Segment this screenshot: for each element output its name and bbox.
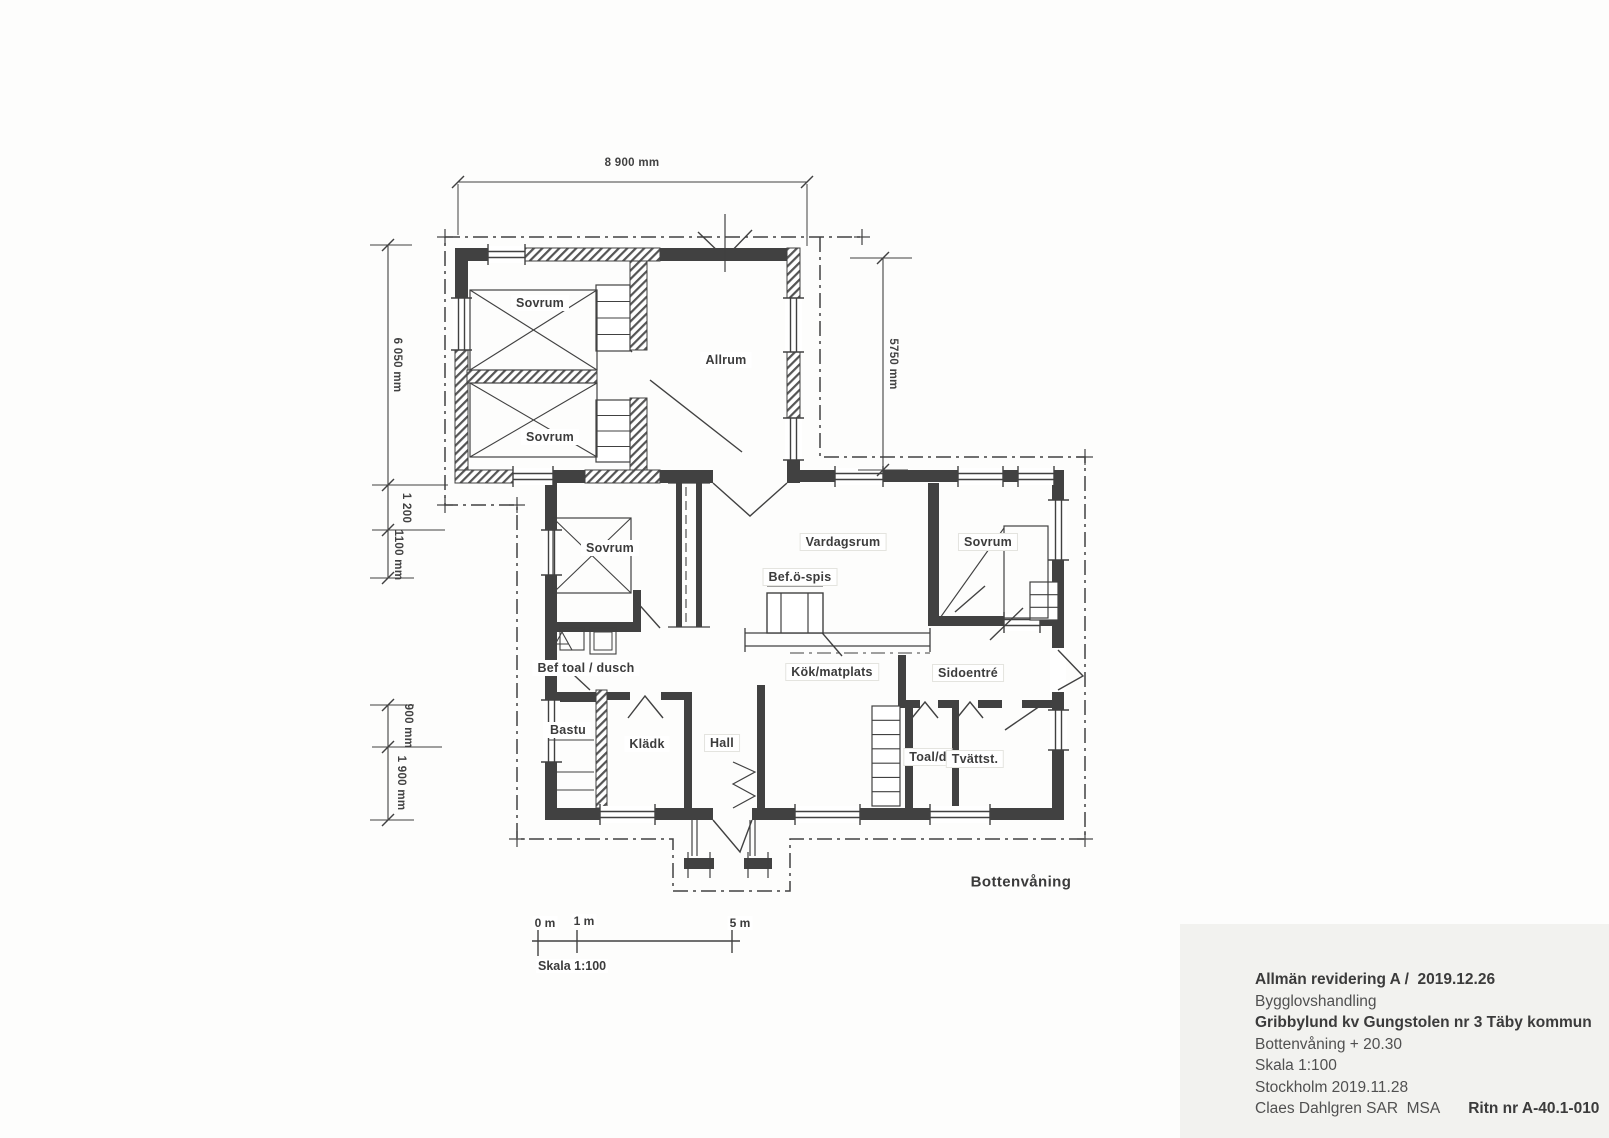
floor-plan-title: Bottenvåning [971, 874, 1072, 891]
room-label-kladk: Klädk [624, 736, 669, 752]
room-label-sidoentre: Sidoentré [932, 664, 1004, 682]
document-type-line: Bygglovshandling [1255, 991, 1599, 1013]
room-label-vardagsrum: Vardagsrum [800, 533, 887, 551]
drawing-number: Ritn nr A-40.1-010 [1468, 1098, 1599, 1120]
scale-line: Skala 1:100 [1255, 1055, 1599, 1077]
floor-line: Bottenvåning + 20.30 [1255, 1034, 1599, 1056]
scale-caption: Skala 1:100 [536, 959, 608, 973]
room-label-bef-toal-dusch: Bef toal / dusch [532, 660, 639, 676]
room-label-bef-o-spis: Bef.ö-spis [763, 568, 838, 586]
dim-left-height: 6 050 mm [391, 338, 403, 393]
dim-left-gap-upper: 1 200 [400, 493, 412, 523]
dim-right-height: 5750 mm [887, 338, 899, 389]
architect-name: Claes Dahlgren SAR MSA [1255, 1098, 1440, 1120]
scale-tick-0-label: 0 m [533, 916, 558, 930]
architect-row: Claes Dahlgren SAR MSA Ritn nr A-40.1-01… [1255, 1098, 1599, 1120]
place-date-line: Stockholm 2019.11.28 [1255, 1077, 1599, 1099]
project-line: Gribbylund kv Gungstolen nr 3 Täby kommu… [1255, 1012, 1599, 1034]
room-label-sovrum-sw: Sovrum [521, 429, 579, 445]
room-label-sovrum-mid: Sovrum [581, 540, 639, 556]
room-label-bastu: Bastu [545, 722, 591, 738]
dim-top-width: 8 900 mm [605, 157, 660, 169]
room-label-sovrum-e: Sovrum [958, 533, 1018, 551]
title-block-lines: Allmän revidering A / 2019.12.26 Bygglov… [1255, 969, 1599, 1120]
title-block: Allmän revidering A / 2019.12.26 Bygglov… [1180, 924, 1609, 1138]
room-label-allrum: Allrum [700, 352, 751, 368]
room-label-tvattst: Tvättst. [946, 750, 1004, 768]
scale-tick-1-label: 1 m [572, 914, 597, 928]
room-label-sovrum-nw: Sovrum [511, 295, 569, 311]
room-label-kok-matplats: Kök/matplats [785, 663, 879, 681]
revision-line: Allmän revidering A / 2019.12.26 [1255, 969, 1599, 991]
dim-lower-left-large: 1 900 mm [395, 756, 407, 811]
dim-left-gap-lower: 1100 mm [392, 530, 404, 581]
scale-tick-5-label: 5 m [728, 916, 753, 930]
room-label-hall: Hall [704, 734, 740, 752]
scanned-floor-plan-page: Sovrum Allrum Sovrum Sovrum Vardagsrum B… [0, 0, 1609, 1138]
dim-lower-left-small: 900 mm [402, 704, 414, 749]
